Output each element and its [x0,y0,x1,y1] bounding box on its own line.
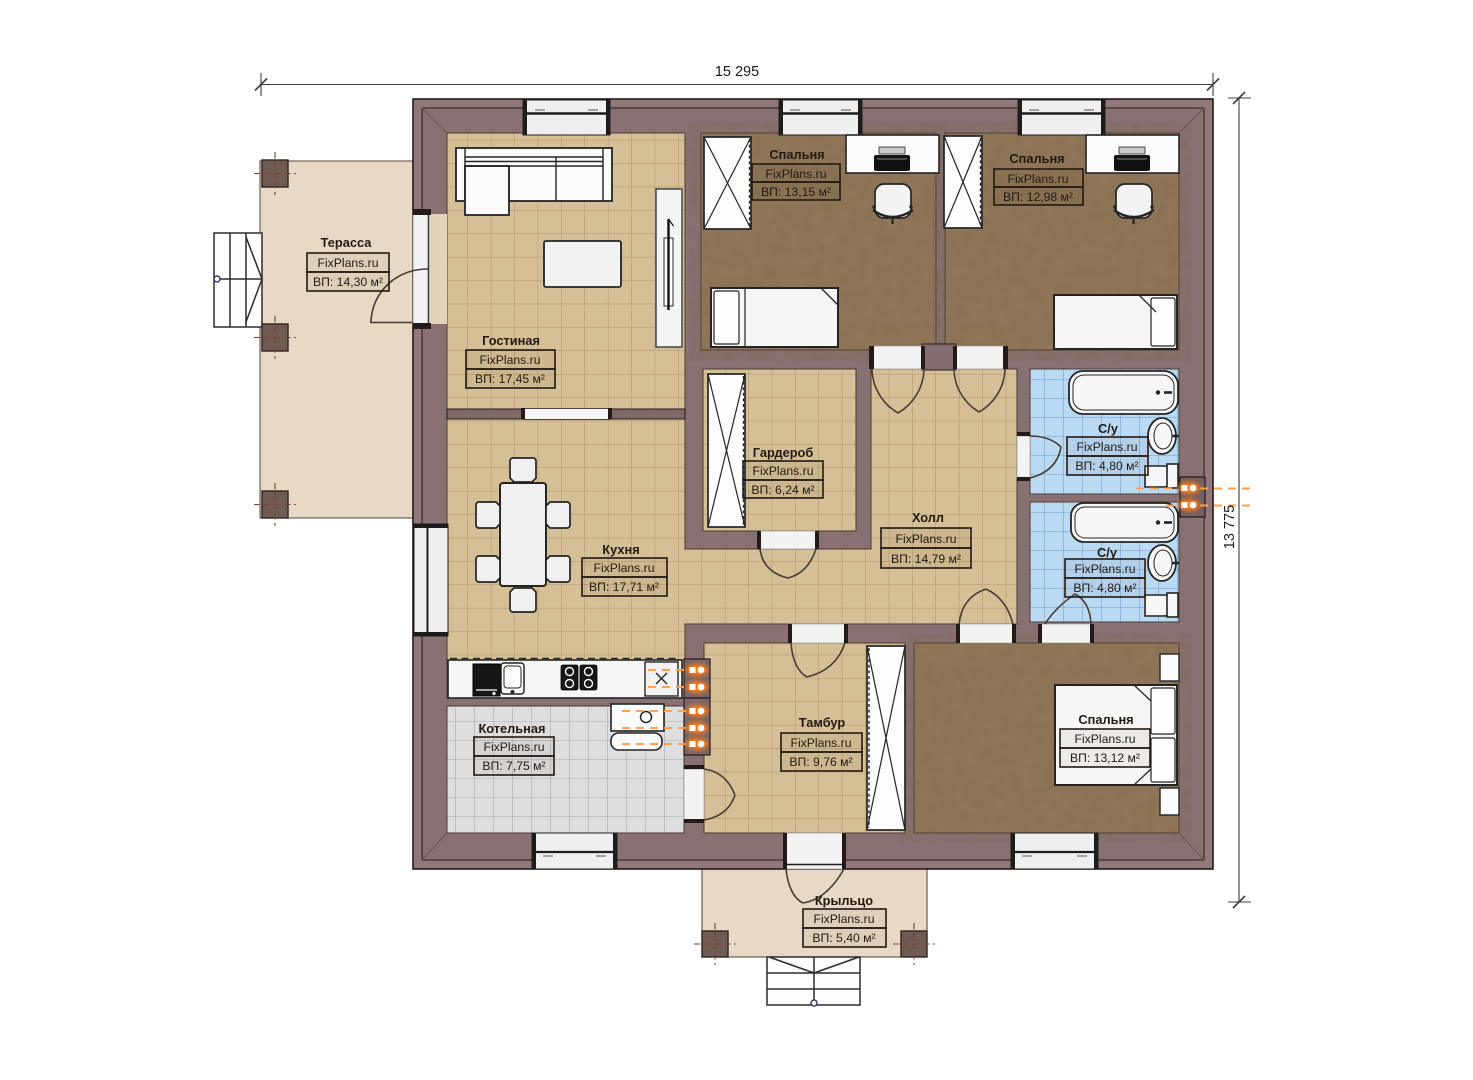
svg-text:ВП: 9,76 м²: ВП: 9,76 м² [789,755,852,769]
svg-text:Терасса: Терасса [321,235,373,250]
svg-text:FixPlans.ru: FixPlans.ru [484,740,545,754]
svg-text:Спальня: Спальня [1009,151,1064,166]
svg-text:Спальня: Спальня [1078,712,1133,727]
svg-text:ВП: 14,79 м²: ВП: 14,79 м² [891,552,961,566]
svg-text:Гардероб: Гардероб [753,445,814,460]
svg-text:FixPlans.ru: FixPlans.ru [318,256,379,270]
svg-text:FixPlans.ru: FixPlans.ru [791,736,852,750]
svg-text:ВП: 6,24 м²: ВП: 6,24 м² [751,483,814,497]
svg-text:ВП: 13,15 м²: ВП: 13,15 м² [761,185,831,199]
svg-text:FixPlans.ru: FixPlans.ru [896,532,957,546]
svg-text:FixPlans.ru: FixPlans.ru [1008,172,1069,186]
svg-text:Гостиная: Гостиная [482,333,540,348]
svg-text:FixPlans.ru: FixPlans.ru [480,353,541,367]
svg-text:ВП: 17,45 м²: ВП: 17,45 м² [475,372,545,386]
svg-text:FixPlans.ru: FixPlans.ru [1075,562,1136,576]
svg-text:ВП: 12,98 м²: ВП: 12,98 м² [1003,190,1073,204]
svg-text:FixPlans.ru: FixPlans.ru [1077,440,1138,454]
svg-text:ВП: 4,80 м²: ВП: 4,80 м² [1073,581,1136,595]
svg-text:Спальня: Спальня [769,147,824,162]
svg-text:Кухня: Кухня [602,542,639,557]
svg-text:ВП: 14,30 м²: ВП: 14,30 м² [313,275,383,289]
svg-text:FixPlans.ru: FixPlans.ru [594,561,655,575]
svg-text:FixPlans.ru: FixPlans.ru [814,912,875,926]
svg-text:С/у: С/у [1098,421,1119,436]
svg-text:15 295: 15 295 [715,64,759,80]
svg-text:С/у: С/у [1097,545,1118,560]
svg-text:FixPlans.ru: FixPlans.ru [1075,732,1136,746]
svg-text:ВП: 13,12 м²: ВП: 13,12 м² [1070,751,1140,765]
svg-text:FixPlans.ru: FixPlans.ru [753,464,814,478]
svg-text:Тамбур: Тамбур [799,715,846,730]
svg-text:Крыльцо: Крыльцо [815,893,873,908]
svg-text:ВП: 7,75 м²: ВП: 7,75 м² [482,759,545,773]
svg-text:ВП: 5,40 м²: ВП: 5,40 м² [812,931,875,945]
svg-text:FixPlans.ru: FixPlans.ru [766,167,827,181]
svg-text:Котельная: Котельная [478,721,545,736]
svg-text:Холл: Холл [912,510,944,525]
svg-text:ВП: 4,80 м²: ВП: 4,80 м² [1075,459,1138,473]
svg-text:ВП: 17,71 м²: ВП: 17,71 м² [589,580,659,594]
svg-text:13 775: 13 775 [1222,505,1238,549]
